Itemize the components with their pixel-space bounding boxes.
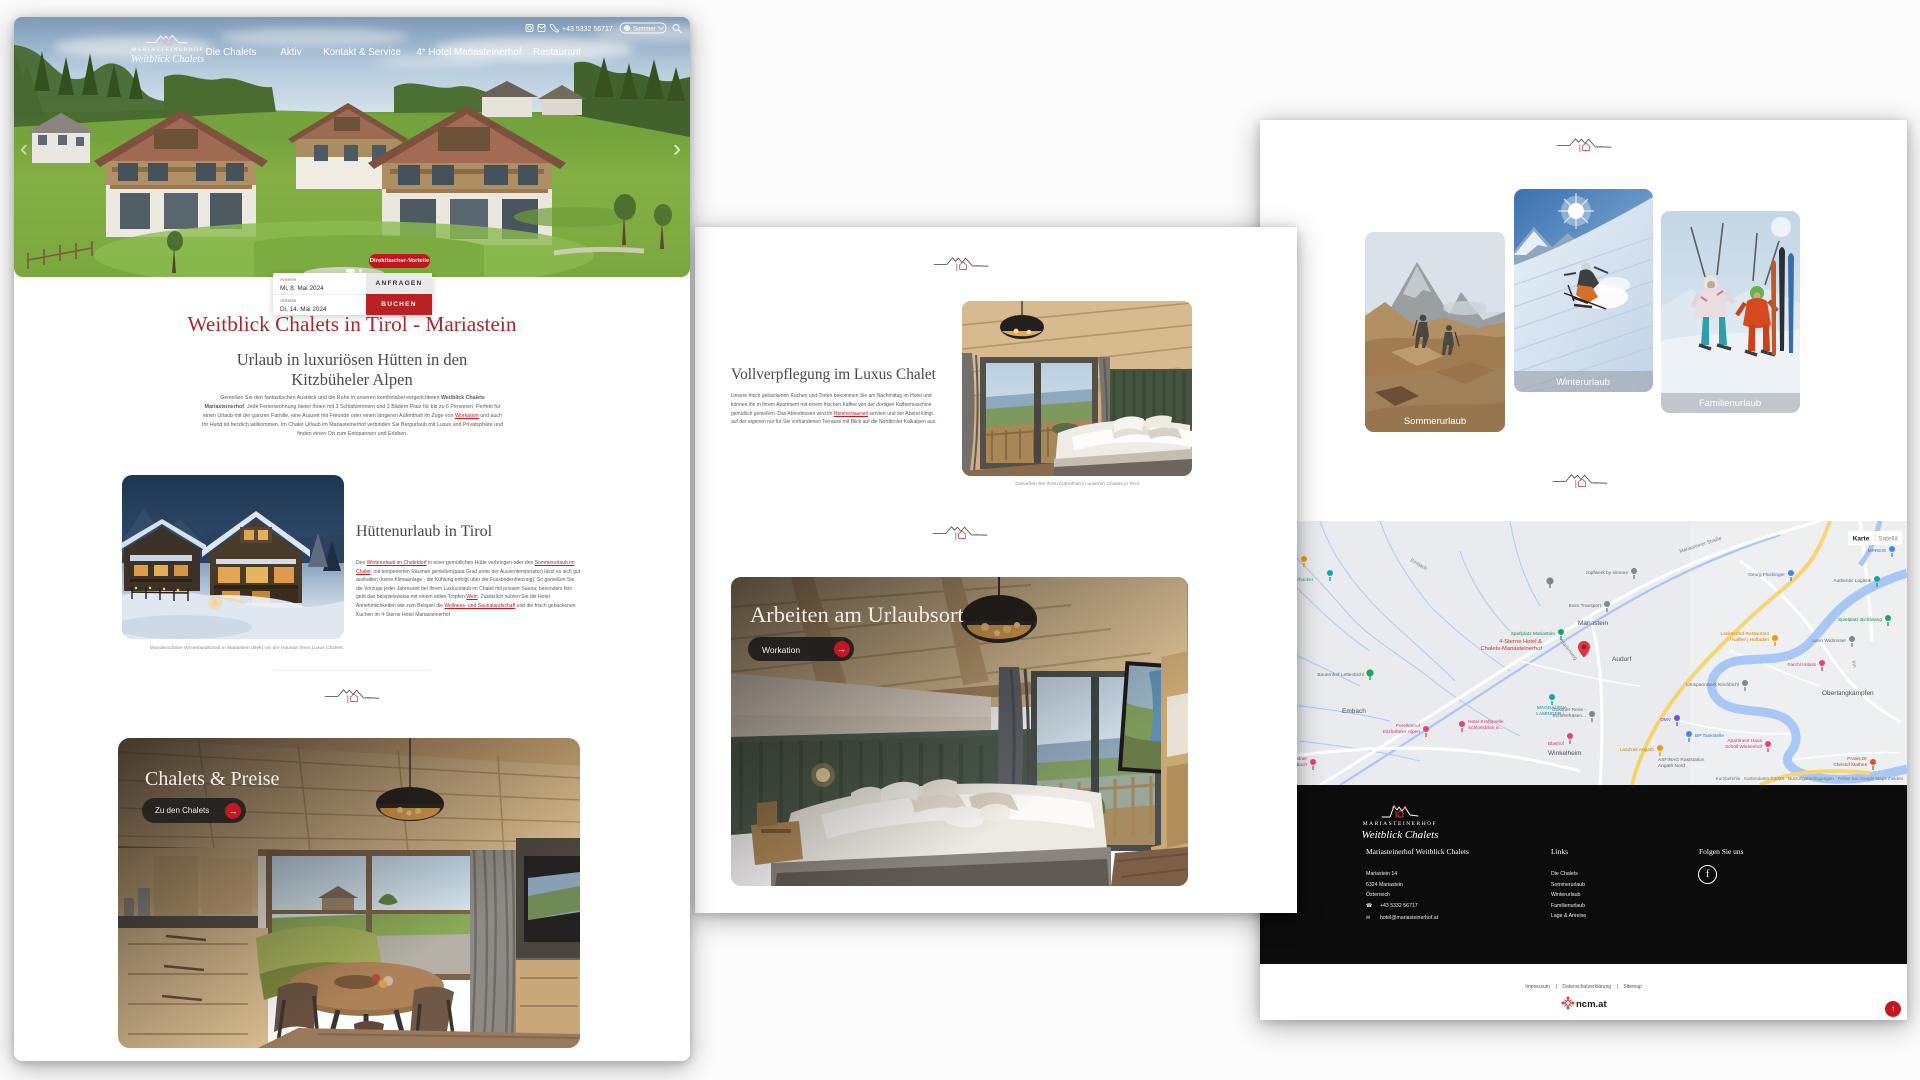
svg-text:Exim Transport: Exim Transport: [1569, 603, 1602, 609]
svg-text:4-Sterne Hotel &: 4-Sterne Hotel &: [1499, 639, 1542, 645]
svg-text:Leon Widmoser: Leon Widmoser: [1812, 638, 1846, 644]
svg-text:ncm.at: ncm.at: [1576, 999, 1607, 1010]
svg-text:Schlossblick in...: Schlossblick in...: [1468, 725, 1503, 731]
svg-text:Landzeit Angath: Landzeit Angath: [1620, 747, 1655, 753]
svg-text:Gossner Rene -: Gossner Rene -: [1552, 707, 1586, 713]
svg-text:/ Kaffee | Hofladen: / Kaffee | Hofladen: [1729, 637, 1769, 643]
svg-text:Farchl Imbiss: Farchl Imbiss: [1787, 662, 1816, 668]
svg-text:Georg Fluckinger: Georg Fluckinger: [1748, 572, 1785, 578]
svg-text:ASFINAG Raststation: ASFINAG Raststation: [1658, 757, 1705, 763]
svg-text:Kurzbefehle Kartendaten ©202: Kurzbefehle Kartendaten ©2024 Nutzungsbe…: [1716, 775, 1904, 781]
svg-text:Chalets-Mariasteinerhof: Chalets-Mariasteinerhof: [1480, 646, 1542, 652]
svg-text:Spielplatz Bichlwang: Spielplatz Bichlwang: [1838, 617, 1882, 623]
svg-text:Winterurlaub: Winterurlaub: [1556, 377, 1610, 388]
svg-text:Apartment Haus: Apartment Haus: [1727, 738, 1762, 744]
svg-text:MPREIS: MPREIS: [1868, 548, 1886, 554]
svg-text:Hotel Kraftquelle: Hotel Kraftquelle: [1468, 719, 1504, 725]
svg-text:Umspannwerk Kirchbichl: Umspannwerk Kirchbichl: [1686, 682, 1739, 688]
svg-text:Sommer: Sommer: [633, 27, 656, 33]
svg-text:Winkelheim: Winkelheim: [1548, 750, 1582, 757]
svg-text:+43 5332 56717: +43 5332 56717: [562, 26, 613, 33]
svg-text:Familienurlaub: Familienurlaub: [1699, 398, 1761, 409]
svg-text:Christof Mathes: Christof Mathes: [1833, 762, 1867, 768]
svg-text:Schneefräsen...: Schneefräsen...: [1552, 713, 1586, 719]
svg-text:Mariastein: Mariastein: [1578, 620, 1608, 627]
svg-text:Embach: Embach: [1342, 708, 1366, 715]
svg-text:Oberlangkampfen: Oberlangkampfen: [1822, 690, 1874, 697]
svg-text:Audorf: Audorf: [1612, 656, 1631, 663]
svg-text:Bauernhof Lettenbichl: Bauernhof Lettenbichl: [1317, 672, 1364, 678]
svg-text:Spielplatz Mariastein: Spielplatz Mariastein: [1511, 631, 1556, 637]
svg-text:Forellenhof: Forellenhof: [1396, 723, 1421, 729]
svg-text:Authentic Logistik: Authentic Logistik: [1833, 578, 1871, 584]
svg-text:Praxis Dr: Praxis Dr: [1847, 756, 1867, 762]
svg-text:Sommerurlaub: Sommerurlaub: [1404, 416, 1466, 427]
svg-text:BP Tankstelle: BP Tankstelle: [1695, 733, 1724, 739]
svg-text:Schöll Wiesenhof: Schöll Wiesenhof: [1725, 744, 1763, 750]
svg-text:Kitzbüheler Alpen: Kitzbüheler Alpen: [1383, 729, 1421, 735]
svg-text:Karte: Karte: [1853, 536, 1870, 543]
svg-text:Lacknerhof Restaurant: Lacknerhof Restaurant: [1720, 631, 1769, 637]
svg-text:zopfwerk by simone: zopfwerk by simone: [1586, 570, 1629, 576]
svg-text:Inn: Inn: [1850, 660, 1857, 668]
svg-text:Blashof: Blashof: [1548, 741, 1565, 747]
svg-text:OMV: OMV: [1660, 717, 1672, 723]
svg-text:Angath Nord: Angath Nord: [1658, 763, 1685, 769]
svg-text:Satellit: Satellit: [1878, 536, 1898, 543]
